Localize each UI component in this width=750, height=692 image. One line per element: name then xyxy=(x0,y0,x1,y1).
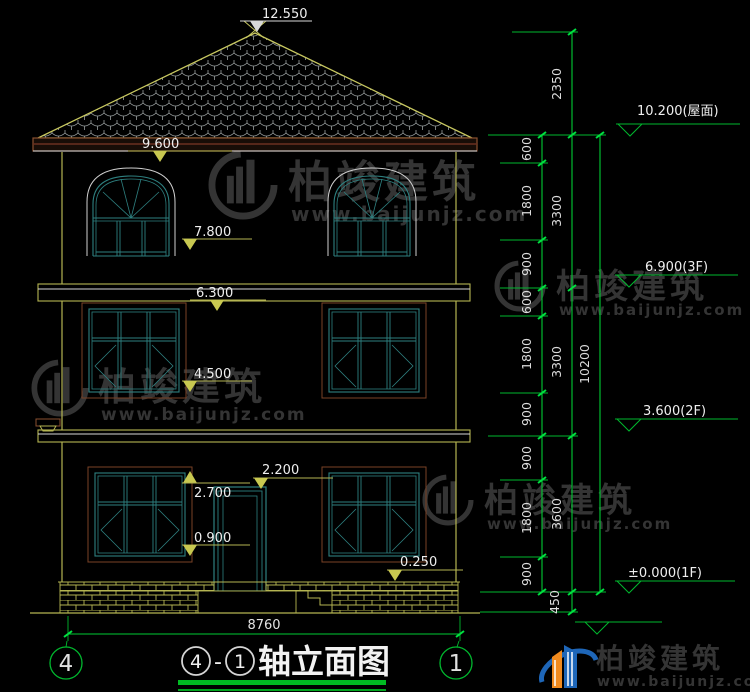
dim-value: 3600 xyxy=(549,498,564,530)
axis-bubble-left: 4 xyxy=(50,641,82,679)
title-block: 4 - 1 轴立面图 xyxy=(178,642,390,690)
dim-chain-inner-labels: 600 1800 900 600 1800 900 900 1800 900 xyxy=(519,137,534,586)
dim-value: 600 xyxy=(519,137,534,161)
level-text: 2.200 xyxy=(262,463,299,478)
brand-logo: 柏竣建筑 www.baijunjz.com xyxy=(542,642,750,690)
dim-chain-outer-labels: 10200 xyxy=(577,344,592,384)
watermark-brand: 柏竣建筑 xyxy=(288,157,480,208)
watermark-logo-icon xyxy=(34,362,85,413)
level-porch: 0.250 xyxy=(387,555,463,581)
dim-value: 10200 xyxy=(577,344,592,384)
dim-value: 900 xyxy=(519,252,534,276)
dim-value: 1800 xyxy=(519,502,534,534)
page-title: 轴立面图 xyxy=(258,642,390,681)
bottom-dimension: 8760 xyxy=(64,616,464,641)
dim-value: 3300 xyxy=(549,346,564,378)
casement-mark xyxy=(392,345,413,387)
watermark-top: 柏竣建筑 www.baijunjz.com xyxy=(212,154,527,226)
casement-mark xyxy=(335,509,356,551)
casement-mark xyxy=(158,509,179,551)
level-text: 10.200(屋面) xyxy=(637,104,719,119)
window-1f-left xyxy=(88,467,192,562)
dim-value: 900 xyxy=(519,402,534,426)
logo-building-blue-icon xyxy=(564,645,577,688)
level-roof-right: 10.200(屋面) xyxy=(616,104,740,136)
level-text: 7.800 xyxy=(194,225,231,240)
level-1f-right: ±0.000(1F) xyxy=(615,566,735,593)
elevation-drawing: 柏竣建筑 www.baijunjz.com 柏竣建筑 www.baijunjz.… xyxy=(0,0,750,692)
level-text: 3.600(2F) xyxy=(643,404,706,419)
cad-elevation-page: 柏竣建筑 www.baijunjz.com 柏竣建筑 www.baijunjz.… xyxy=(0,0,750,692)
logo-brand-text: 柏竣建筑 xyxy=(596,642,724,675)
corbel xyxy=(36,419,60,426)
dim-value: 3300 xyxy=(549,195,564,227)
dim-value: 2350 xyxy=(549,68,564,100)
watermark-url: www.baijunjz.com xyxy=(291,202,527,226)
level-text: ±0.000(1F) xyxy=(628,566,702,581)
window-2f-right xyxy=(322,303,426,398)
roof-tiles xyxy=(38,33,472,138)
dim-value: 450 xyxy=(547,590,562,614)
title-underline xyxy=(178,680,386,685)
porch-slab xyxy=(198,591,296,613)
level-ground-right xyxy=(575,622,662,634)
level-text: 0.900 xyxy=(194,531,231,546)
title-axis-start: 4 xyxy=(190,651,202,673)
level-peak: 12.550 xyxy=(240,7,312,32)
title-separator: - xyxy=(214,650,222,675)
logo-url-text: www.baijunjz.com xyxy=(597,674,750,690)
watermark-logo-icon xyxy=(212,154,274,216)
title-axis-end: 1 xyxy=(234,651,246,673)
eaves-band xyxy=(33,138,477,151)
casement-mark xyxy=(335,345,356,387)
watermark-url: www.baijunjz.com xyxy=(487,515,672,533)
axis-number: 4 xyxy=(59,651,74,677)
axis-number: 1 xyxy=(449,651,464,677)
roof xyxy=(38,21,472,138)
casement-mark xyxy=(101,509,122,551)
level-2f-right: 3.600(2F) xyxy=(615,404,738,431)
dim-value: 1800 xyxy=(519,185,534,217)
dim-total-width: 8760 xyxy=(247,618,280,633)
level-text: 4.500 xyxy=(194,367,231,382)
dim-value: 900 xyxy=(519,562,534,586)
watermark-brand: 柏竣建筑 xyxy=(98,365,266,409)
casement-mark xyxy=(392,509,413,551)
plinth xyxy=(30,582,480,613)
dim-value: 600 xyxy=(519,290,534,314)
level-text: 2.700 xyxy=(194,486,231,501)
floor-band-3f xyxy=(38,284,470,301)
level-text: 6.900(3F) xyxy=(645,260,708,275)
porch-steps xyxy=(296,591,332,613)
watermark-url: www.baijunjz.com xyxy=(559,301,744,319)
level-3f-sill: 7.800 xyxy=(182,225,252,250)
window-1f-right xyxy=(322,467,426,562)
level-text: 9.600 xyxy=(142,137,179,152)
watermark-left: 柏竣建筑 www.baijunjz.com xyxy=(34,362,306,425)
axis-bubble-right: 1 xyxy=(440,641,472,679)
fan-mullions xyxy=(103,179,159,218)
watermark-url: www.baijunjz.com xyxy=(101,405,307,425)
dim-value: 1800 xyxy=(519,338,534,370)
dim-value: 900 xyxy=(519,446,534,470)
level-door-top: 2.200 xyxy=(253,463,333,489)
level-text: 0.250 xyxy=(400,555,437,570)
window-3f-left xyxy=(87,168,175,256)
level-text: 12.550 xyxy=(262,7,308,22)
level-text: 6.300 xyxy=(196,286,233,301)
logo-building-orange-icon xyxy=(552,650,562,688)
